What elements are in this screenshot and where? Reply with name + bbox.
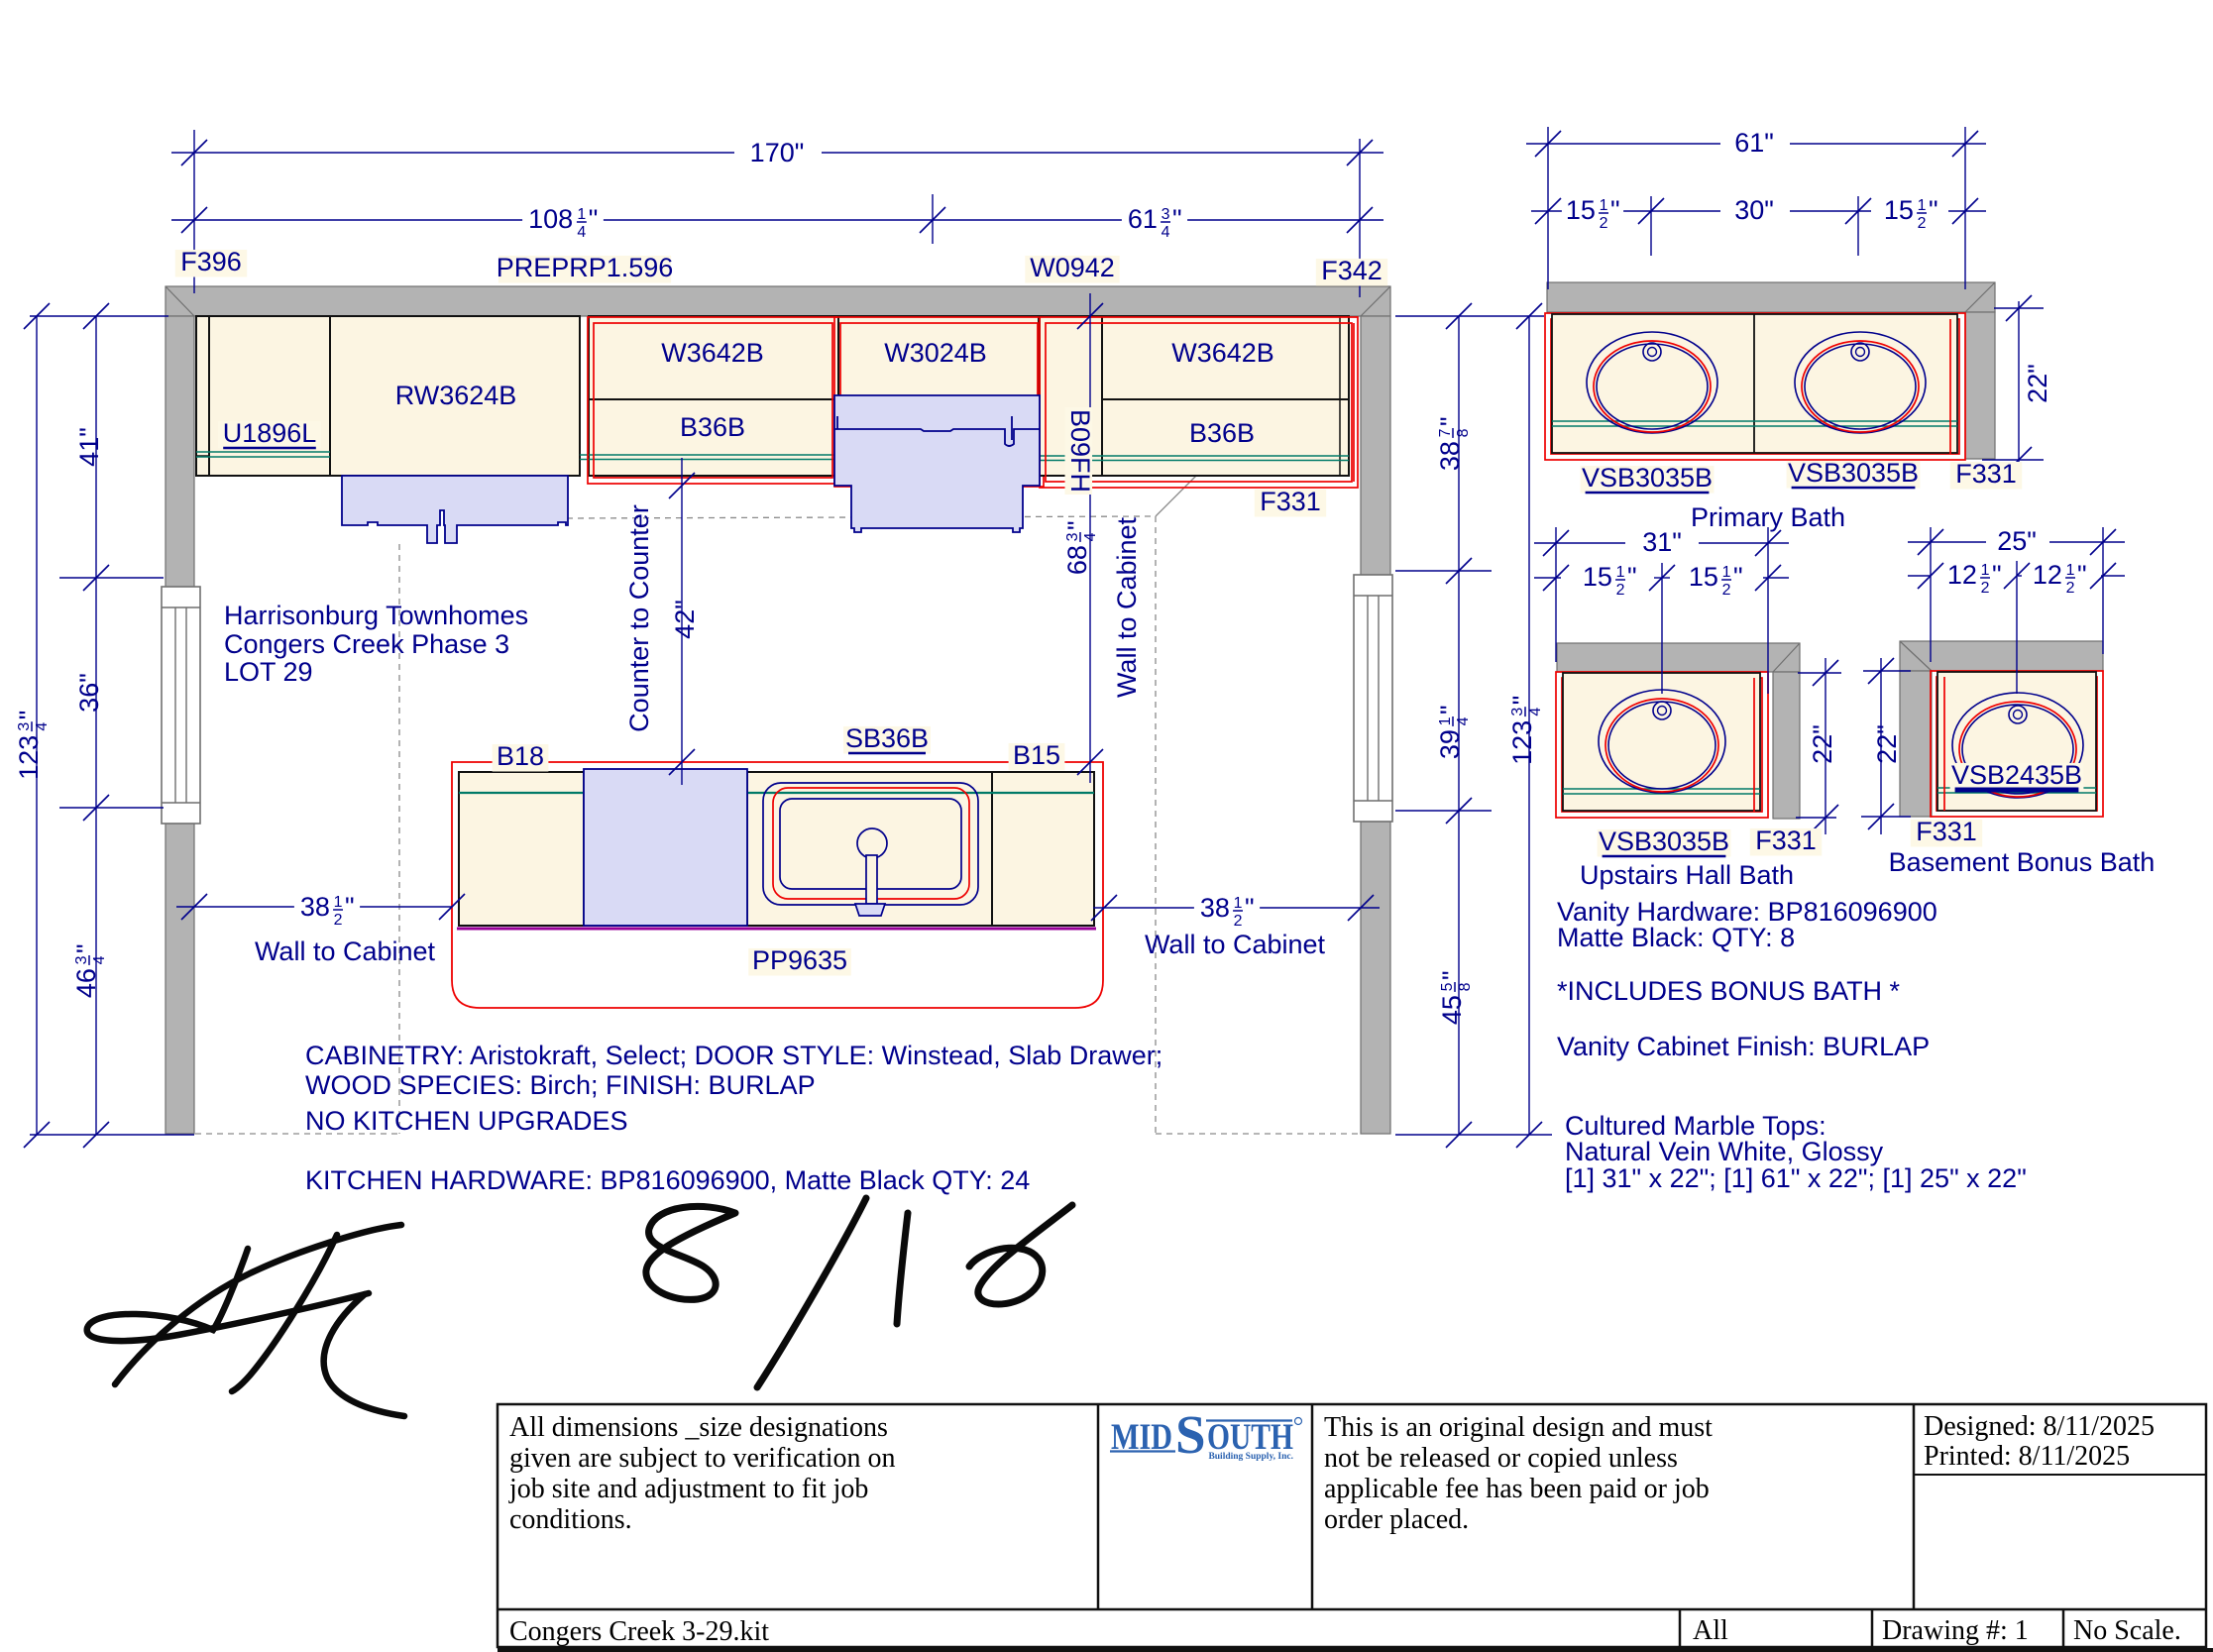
svg-text:12: 12: [1947, 560, 1977, 590]
svg-text:": ": [1435, 705, 1465, 715]
svg-text:Vanity Cabinet Finish: BURLAP: Vanity Cabinet Finish: BURLAP: [1557, 1032, 1930, 1061]
svg-text:123: 123: [14, 735, 44, 780]
svg-text:Congers Creek Phase 3: Congers Creek Phase 3: [224, 629, 509, 659]
svg-text:": ": [2077, 560, 2087, 590]
svg-text:not be released or copied unle: not be released or copied unless: [1324, 1443, 1678, 1474]
svg-text:1: 1: [1234, 895, 1243, 912]
svg-text:": ": [1062, 520, 1092, 530]
svg-text:4: 4: [1082, 532, 1099, 541]
svg-text:61: 61: [1128, 204, 1158, 234]
svg-text:7: 7: [1437, 428, 1454, 437]
svg-text:123: 123: [1507, 720, 1537, 765]
svg-text:1: 1: [1981, 562, 1990, 579]
svg-text:4: 4: [1162, 224, 1170, 241]
svg-text:3: 3: [16, 722, 33, 731]
svg-text:F331: F331: [1755, 826, 1817, 855]
svg-text:3: 3: [1064, 532, 1081, 541]
svg-text:VSB3035B: VSB3035B: [1599, 826, 1729, 856]
svg-text:W3024B: W3024B: [884, 338, 987, 368]
svg-text:Wall to Cabinet: Wall to Cabinet: [1145, 930, 1326, 959]
svg-text:": ": [1929, 195, 1938, 225]
svg-text:39: 39: [1435, 729, 1465, 759]
svg-text:30": 30": [1734, 195, 1774, 225]
svg-text:15: 15: [1566, 195, 1596, 225]
svg-text:Printed: 8/11/2025: Printed: 8/11/2025: [1924, 1441, 2130, 1472]
svg-text:": ": [1610, 195, 1620, 225]
svg-text:CABINETRY: Aristokraft, Select: CABINETRY: Aristokraft, Select; DOOR STY…: [305, 1041, 1162, 1070]
svg-text:Counter to Counter: Counter to Counter: [624, 504, 654, 732]
svg-text:1: 1: [1722, 564, 1731, 581]
svg-text:": ": [71, 943, 101, 953]
svg-text:4: 4: [1455, 716, 1472, 725]
svg-text:38: 38: [300, 892, 330, 922]
svg-text:2: 2: [1981, 580, 1990, 597]
svg-text:3: 3: [1509, 708, 1526, 716]
svg-text:F342: F342: [1321, 256, 1383, 285]
svg-text:B18: B18: [497, 741, 544, 771]
svg-text:4: 4: [91, 955, 108, 964]
svg-text:1: 1: [2066, 562, 2075, 579]
svg-text:": ": [1627, 562, 1637, 592]
svg-text:5: 5: [1439, 982, 1456, 991]
svg-text:41": 41": [74, 427, 104, 467]
svg-text:4: 4: [34, 722, 51, 731]
svg-text:RW3624B: RW3624B: [395, 381, 517, 410]
svg-text:108: 108: [528, 204, 573, 234]
svg-text:2: 2: [1722, 582, 1731, 599]
svg-text:2: 2: [1616, 582, 1625, 599]
svg-text:Natural Vein White, Glossy: Natural Vein White, Glossy: [1565, 1137, 1884, 1166]
svg-text:Building Supply, Inc.: Building Supply, Inc.: [1208, 1452, 1293, 1462]
svg-text:Matte Black: QTY: 8: Matte Black: QTY: 8: [1557, 923, 1795, 952]
svg-text:22": 22": [1872, 724, 1902, 764]
svg-text:PP9635: PP9635: [752, 945, 847, 975]
svg-text:Drawing #: 1: Drawing #: 1: [1882, 1615, 2029, 1646]
svg-text:2: 2: [1918, 215, 1927, 232]
svg-text:42": 42": [670, 600, 700, 639]
svg-text:": ": [1245, 893, 1255, 923]
svg-text:38: 38: [1200, 893, 1230, 923]
svg-text:38: 38: [1435, 441, 1465, 471]
svg-text:46: 46: [71, 968, 101, 998]
svg-text:VSB3035B: VSB3035B: [1582, 463, 1713, 493]
svg-text:3: 3: [1162, 206, 1170, 223]
svg-text:VSB3035B: VSB3035B: [1788, 458, 1919, 488]
svg-text:Congers Creek 3-29.kit: Congers Creek 3-29.kit: [509, 1616, 769, 1647]
svg-text:order placed.: order placed.: [1324, 1504, 1469, 1535]
svg-text:15: 15: [1884, 195, 1914, 225]
svg-text:36": 36": [74, 673, 104, 713]
svg-text:": ": [1507, 696, 1537, 706]
svg-text:Harrisonburg Townhomes: Harrisonburg Townhomes: [224, 601, 528, 630]
svg-text:W3642B: W3642B: [661, 338, 764, 368]
svg-text:F331: F331: [1916, 817, 1977, 846]
svg-text:Upstairs Hall Bath: Upstairs Hall Bath: [1580, 860, 1794, 890]
svg-text:W0942: W0942: [1030, 253, 1115, 282]
svg-text:This is an original design and: This is an original design and must: [1324, 1412, 1713, 1443]
svg-text:WOOD SPECIES: Birch; FINISH: B: WOOD SPECIES: Birch; FINISH: BURLAP: [305, 1070, 816, 1100]
svg-text:1: 1: [1600, 197, 1608, 214]
svg-text:2: 2: [1234, 913, 1243, 930]
svg-text:22": 22": [2023, 364, 2052, 403]
svg-text:25": 25": [1997, 526, 2037, 556]
svg-text:MID: MID: [1111, 1417, 1172, 1458]
svg-text:": ": [1992, 560, 2002, 590]
svg-text:U1896L: U1896L: [223, 418, 317, 448]
svg-text:[1] 31" x 22"; [1] 61" x 22";: [1] 31" x 22"; [1] 61" x 22"; [1] 25" x …: [1565, 1163, 2027, 1193]
svg-text:22": 22": [1808, 724, 1837, 764]
svg-text:S: S: [1175, 1404, 1206, 1465]
svg-text:": ": [1435, 416, 1465, 426]
svg-text:2: 2: [1600, 215, 1608, 232]
svg-text:15: 15: [1689, 562, 1718, 592]
svg-text:B15: B15: [1013, 740, 1060, 770]
svg-text:": ": [1733, 562, 1743, 592]
svg-text:F331: F331: [1955, 459, 2017, 489]
svg-text:Designed: 8/11/2025: Designed: 8/11/2025: [1924, 1411, 2155, 1442]
svg-text:": ": [1172, 204, 1182, 234]
svg-text:W3642B: W3642B: [1171, 338, 1274, 368]
svg-text:All dimensions _size designati: All dimensions _size designations: [509, 1412, 888, 1443]
svg-text:B36B: B36B: [1189, 418, 1255, 448]
svg-text:F331: F331: [1260, 487, 1321, 516]
svg-text:": ": [345, 892, 355, 922]
svg-text:*INCLUDES BONUS BATH *: *INCLUDES BONUS BATH *: [1557, 976, 1901, 1006]
svg-text:31": 31": [1642, 527, 1682, 557]
svg-text:8: 8: [1457, 982, 1474, 991]
svg-text:1: 1: [1437, 716, 1454, 725]
svg-text:conditions.: conditions.: [509, 1504, 632, 1535]
svg-text:15: 15: [1583, 562, 1612, 592]
svg-text:Wall to Cabinet: Wall to Cabinet: [1112, 516, 1142, 698]
svg-text:1: 1: [334, 894, 343, 911]
svg-text:68: 68: [1062, 545, 1092, 575]
svg-text:1: 1: [577, 206, 586, 223]
svg-text:4: 4: [577, 224, 586, 241]
svg-text:Basement Bonus Bath: Basement Bonus Bath: [1889, 847, 2156, 877]
svg-text:": ": [1437, 970, 1467, 980]
svg-text:VSB2435B: VSB2435B: [1951, 760, 2082, 790]
svg-text:1: 1: [1918, 197, 1927, 214]
svg-text:B09FH: B09FH: [1065, 409, 1095, 493]
svg-text:2: 2: [334, 912, 343, 929]
svg-text:170": 170": [750, 138, 805, 167]
svg-text:": ": [589, 204, 599, 234]
svg-text:NO KITCHEN UPGRADES: NO KITCHEN UPGRADES: [305, 1106, 628, 1136]
svg-text:applicable fee has been paid o: applicable fee has been paid or job: [1324, 1474, 1710, 1504]
svg-text:4: 4: [1527, 708, 1544, 716]
svg-text:1: 1: [1616, 564, 1625, 581]
svg-text:": ": [14, 711, 44, 720]
svg-text:Wall to Cabinet: Wall to Cabinet: [255, 936, 436, 966]
svg-text:B36B: B36B: [680, 412, 745, 442]
svg-text:61": 61": [1734, 128, 1774, 158]
svg-text:No Scale.: No Scale.: [2073, 1615, 2181, 1646]
svg-text:3: 3: [73, 955, 90, 964]
svg-text:8: 8: [1455, 428, 1472, 437]
svg-text:LOT 29: LOT 29: [224, 657, 313, 687]
svg-text:KITCHEN HARDWARE: BP816096900,: KITCHEN HARDWARE: BP816096900, Matte Bla…: [305, 1165, 1030, 1195]
svg-text:2: 2: [2066, 580, 2075, 597]
svg-text:12: 12: [2033, 560, 2062, 590]
svg-text:given are subject to verificat: given are subject to verification on: [509, 1443, 896, 1474]
svg-text:job site and adjustment to fit: job site and adjustment to fit job: [508, 1474, 868, 1504]
svg-text:F396: F396: [180, 247, 242, 276]
svg-text:SB36B: SB36B: [845, 723, 929, 753]
svg-text:PREPRP1.596: PREPRP1.596: [497, 253, 674, 282]
svg-text:45: 45: [1437, 995, 1467, 1025]
svg-text:All: All: [1693, 1615, 1728, 1646]
